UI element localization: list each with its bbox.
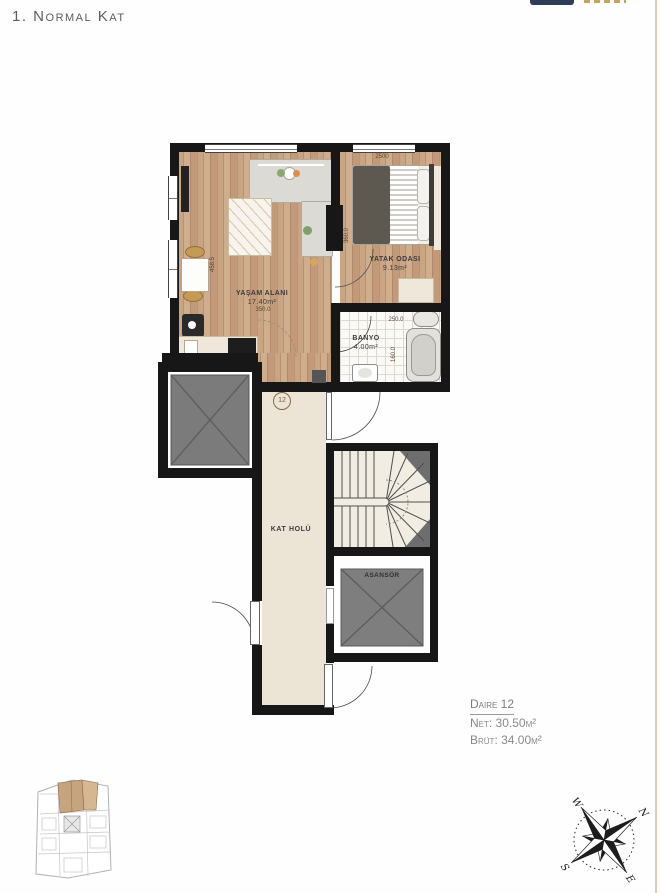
living-room-name: YAŞAM ALANI [236, 290, 288, 297]
bath-depth-dim: 160.0 [391, 347, 397, 362]
unit-info-brut: Brüt: 34.00m² [470, 733, 542, 747]
living-room-label: YAŞAM ALANI 17.40m² [212, 289, 312, 307]
dining-chair [185, 246, 205, 258]
logo-text-partial [584, 0, 626, 3]
bathroom-area: 4.00m² [336, 343, 396, 352]
bathtub-basin [411, 334, 436, 376]
entry-door-leaf [326, 392, 332, 440]
page-title: 1. Normal Kat [12, 8, 126, 25]
dining-table [181, 258, 209, 292]
wall [326, 205, 343, 251]
sink [413, 311, 439, 327]
wall [252, 645, 262, 713]
hall-floor [262, 392, 326, 705]
washing-machine-door-icon [188, 321, 196, 329]
headboard [429, 164, 434, 246]
wall [326, 555, 334, 586]
bedroom-depth-dim: 360.0 [344, 228, 350, 243]
elevator-door [326, 588, 334, 624]
bedroom-label: YATAK ODASI 9.13m² [345, 255, 445, 273]
plant-icon [277, 169, 285, 177]
rug [228, 198, 272, 256]
compass-south-label: S [558, 862, 571, 874]
living-depth-dim: 458.5 [210, 257, 216, 272]
unit-number-badge: 12 [273, 392, 291, 410]
floor-plan-page: 1. Normal Kat [0, 0, 660, 893]
wall [331, 303, 450, 312]
hall-left-door-leaf [250, 601, 260, 645]
hall-label: KAT HOLÜ [261, 525, 321, 534]
flower-icon [293, 170, 300, 177]
unit-info-net: Net: 30.50m² [470, 716, 536, 730]
wall [326, 443, 334, 555]
key-plan [28, 772, 116, 884]
compass-rose: N E S W [556, 786, 656, 893]
wall [331, 151, 340, 213]
staircase [334, 451, 430, 553]
wall [252, 382, 450, 392]
logo-mark-partial [530, 0, 574, 5]
bedroom-width-dim: 2500 [368, 154, 396, 160]
column [312, 370, 326, 383]
living-window [205, 144, 297, 153]
bed-throw [390, 166, 418, 244]
wall [252, 705, 334, 715]
unit-info-block: Daire 12 Net: 30.50m² Brüt: 34.00m² [470, 696, 542, 749]
page-right-border [655, 0, 657, 893]
hall-right-door-leaf [324, 664, 333, 708]
wall [158, 468, 262, 478]
living-side-window [168, 240, 178, 298]
plant-icon [303, 226, 312, 235]
balcony-door-leaf [181, 166, 189, 212]
balcony-window [168, 176, 178, 220]
bedroom-dresser [398, 278, 434, 303]
bedroom-name: YATAK ODASI [370, 256, 421, 263]
elevator-label: ASANSÖR [340, 571, 424, 580]
wall [326, 653, 438, 662]
bedroom-window [353, 144, 415, 153]
bath-width-dim: 250.0 [382, 317, 410, 323]
sofa-cushion-line [258, 164, 324, 166]
unit-info-title: Daire 12 [470, 696, 514, 715]
wall [158, 362, 262, 372]
bedroom-area: 9.13m² [345, 264, 445, 273]
bathroom-name: BANYO [352, 335, 379, 342]
compass-east-label: E [623, 872, 637, 886]
wall [158, 362, 168, 478]
bathroom-label: BANYO 4.00m² [336, 334, 396, 352]
wall [252, 468, 262, 601]
wall [252, 362, 262, 478]
living-room-area: 17.40m² [212, 298, 312, 307]
bed-blanket [353, 166, 390, 244]
wall [326, 547, 438, 556]
bedroom-sill [434, 166, 441, 250]
plant-icon [310, 258, 318, 266]
key-plan-unit-highlight [58, 780, 98, 813]
compass-north-label: N [635, 805, 650, 820]
living-width-dim: 350.0 [248, 307, 278, 313]
toilet-seat [358, 368, 372, 378]
wall [326, 443, 438, 451]
light-shaft [170, 374, 250, 466]
